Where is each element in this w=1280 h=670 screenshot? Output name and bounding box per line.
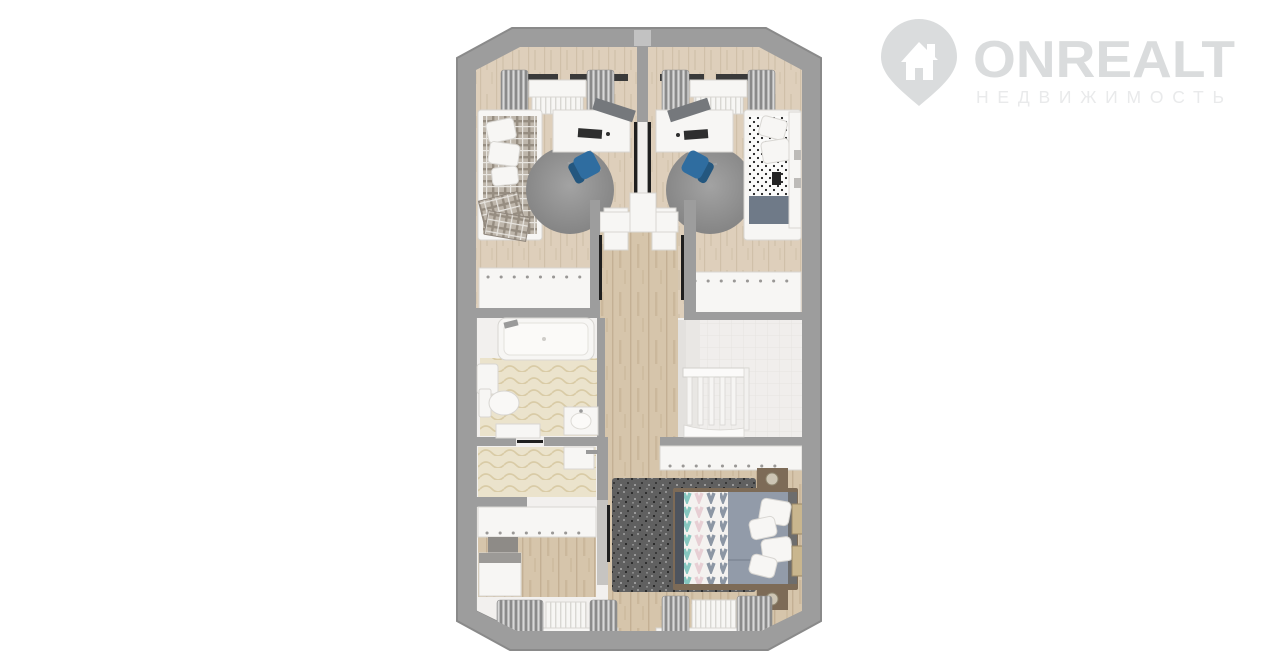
small-sink-faucet	[586, 450, 598, 454]
door-frame	[681, 235, 684, 300]
door-frame	[634, 122, 637, 195]
real-estate-floor-plan-page: ONREALT НЕДВИЖИМОСТЬ	[0, 0, 1280, 670]
wall	[544, 437, 600, 446]
keyboard	[578, 128, 603, 139]
radiator-ribs	[692, 600, 736, 628]
wardrobe	[687, 272, 801, 315]
tablet	[772, 172, 781, 185]
wardrobe	[479, 268, 597, 310]
mouse	[606, 132, 610, 136]
stair-wall	[678, 320, 686, 437]
pin-house-door	[915, 68, 923, 80]
staircase	[683, 320, 802, 437]
wall-stub	[476, 497, 527, 507]
bed-foot-fold	[749, 196, 792, 224]
wall-shelf-item	[794, 150, 801, 160]
dresser-top	[488, 537, 518, 553]
wall	[660, 437, 802, 446]
radiator-ribs	[546, 602, 586, 628]
sink-faucet	[579, 409, 583, 413]
bath-bench	[496, 424, 540, 438]
wall	[590, 200, 600, 318]
wall-lower	[597, 500, 608, 585]
stair-newel	[744, 368, 749, 430]
window-sill	[690, 80, 747, 97]
stair-railing	[683, 368, 749, 377]
wardrobe-strip	[789, 112, 801, 228]
pillow	[760, 138, 791, 164]
pillow	[488, 141, 521, 167]
onrealt-watermark: ONREALT НЕДВИЖИМОСТЬ	[881, 19, 1235, 107]
pillow	[491, 166, 519, 187]
round-rug	[666, 146, 754, 234]
keyboard	[684, 129, 709, 140]
wall	[684, 200, 696, 320]
brand-subtitle: НЕДВИЖИМОСТЬ	[976, 87, 1224, 107]
window-sill	[529, 80, 586, 97]
wall	[684, 312, 802, 321]
center-wardrobe-back	[630, 193, 656, 232]
duvet-fold	[675, 492, 684, 584]
brand-name: ONREALT	[973, 31, 1235, 89]
floor-plan-render: ONREALT НЕДВИЖИМОСТЬ	[0, 0, 1280, 670]
sink-basin	[571, 413, 591, 429]
bedroom-door-frame	[607, 505, 610, 562]
bathtub-drain	[542, 337, 546, 341]
toilet-bowl	[489, 391, 519, 415]
floor-plan	[457, 28, 821, 650]
table-lamp	[766, 473, 778, 485]
mouse	[676, 133, 680, 137]
top-wall-notch	[634, 30, 651, 46]
center-wall	[637, 47, 648, 122]
wall	[597, 437, 608, 500]
door-frame	[648, 122, 651, 195]
chevron-runner	[684, 492, 728, 584]
wall-shelf-item	[794, 178, 801, 188]
cabinet-top	[479, 553, 521, 563]
door-threshold	[517, 440, 543, 443]
wall	[476, 308, 600, 318]
wardrobe	[660, 446, 802, 470]
door-frame	[599, 235, 602, 300]
